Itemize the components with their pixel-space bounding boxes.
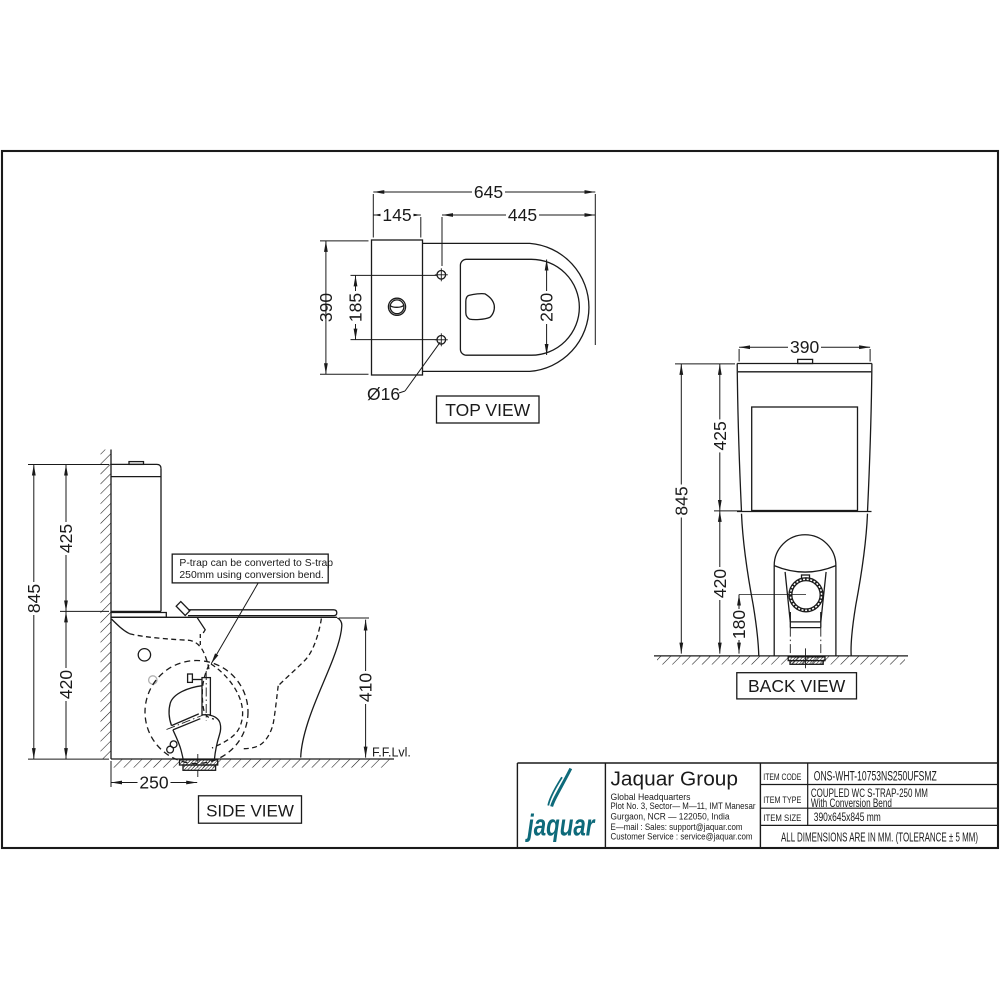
svg-text:Plot No. 3, Sector— M—11, IMT: Plot No. 3, Sector— M—11, IMT Manesar [611,801,757,812]
svg-text:BACK VIEW: BACK VIEW [748,676,846,696]
svg-text:Gurgaon, NCR — 122050, India: Gurgaon, NCR — 122050, India [611,812,731,823]
svg-text:420: 420 [56,670,76,699]
svg-text:390x645x845 mm: 390x645x845 mm [814,810,881,824]
svg-text:Ø16: Ø16 [367,384,400,404]
svg-text:F.F.Lvl.: F.F.Lvl. [372,746,411,760]
svg-text:145: 145 [382,205,411,225]
svg-text:ITEM TYPE: ITEM TYPE [763,795,801,805]
svg-text:SIDE VIEW: SIDE VIEW [206,802,294,821]
svg-text:Jaquar Group: Jaquar Group [611,768,739,791]
svg-text:390: 390 [316,293,336,322]
svg-text:ITEM CODE: ITEM CODE [763,772,801,782]
svg-text:425: 425 [56,524,76,553]
svg-text:ONS-WHT-10753NS250UFSMZ: ONS-WHT-10753NS250UFSMZ [814,768,937,783]
svg-text:Customer Service : service@jaq: Customer Service : service@jaquar.com [611,832,753,843]
svg-text:280: 280 [537,292,557,321]
svg-text:845: 845 [24,584,44,613]
svg-text:185: 185 [346,293,366,322]
svg-text:250: 250 [139,773,168,793]
svg-text:180: 180 [729,610,749,639]
svg-text:With Conversion Bend: With Conversion Bend [811,796,892,810]
svg-text:ITEM SIZE: ITEM SIZE [763,813,801,823]
svg-text:TOP VIEW: TOP VIEW [445,400,530,420]
svg-text:250mm using conversion bend.: 250mm using conversion bend. [179,570,323,581]
svg-text:ALL DIMENSIONS ARE IN MM. (TOL: ALL DIMENSIONS ARE IN MM. (TOLERANCE ± 5… [781,830,978,844]
svg-text:645: 645 [474,182,503,202]
svg-text:420: 420 [710,569,730,598]
svg-text:410: 410 [356,673,376,702]
svg-text:P-trap can be converted to S-t: P-trap can be converted to S-trap [179,558,333,569]
svg-text:425: 425 [710,421,730,450]
svg-text:845: 845 [671,486,691,515]
svg-text:jaquar: jaquar [525,808,596,843]
svg-text:445: 445 [508,205,537,225]
svg-text:390: 390 [790,337,819,357]
